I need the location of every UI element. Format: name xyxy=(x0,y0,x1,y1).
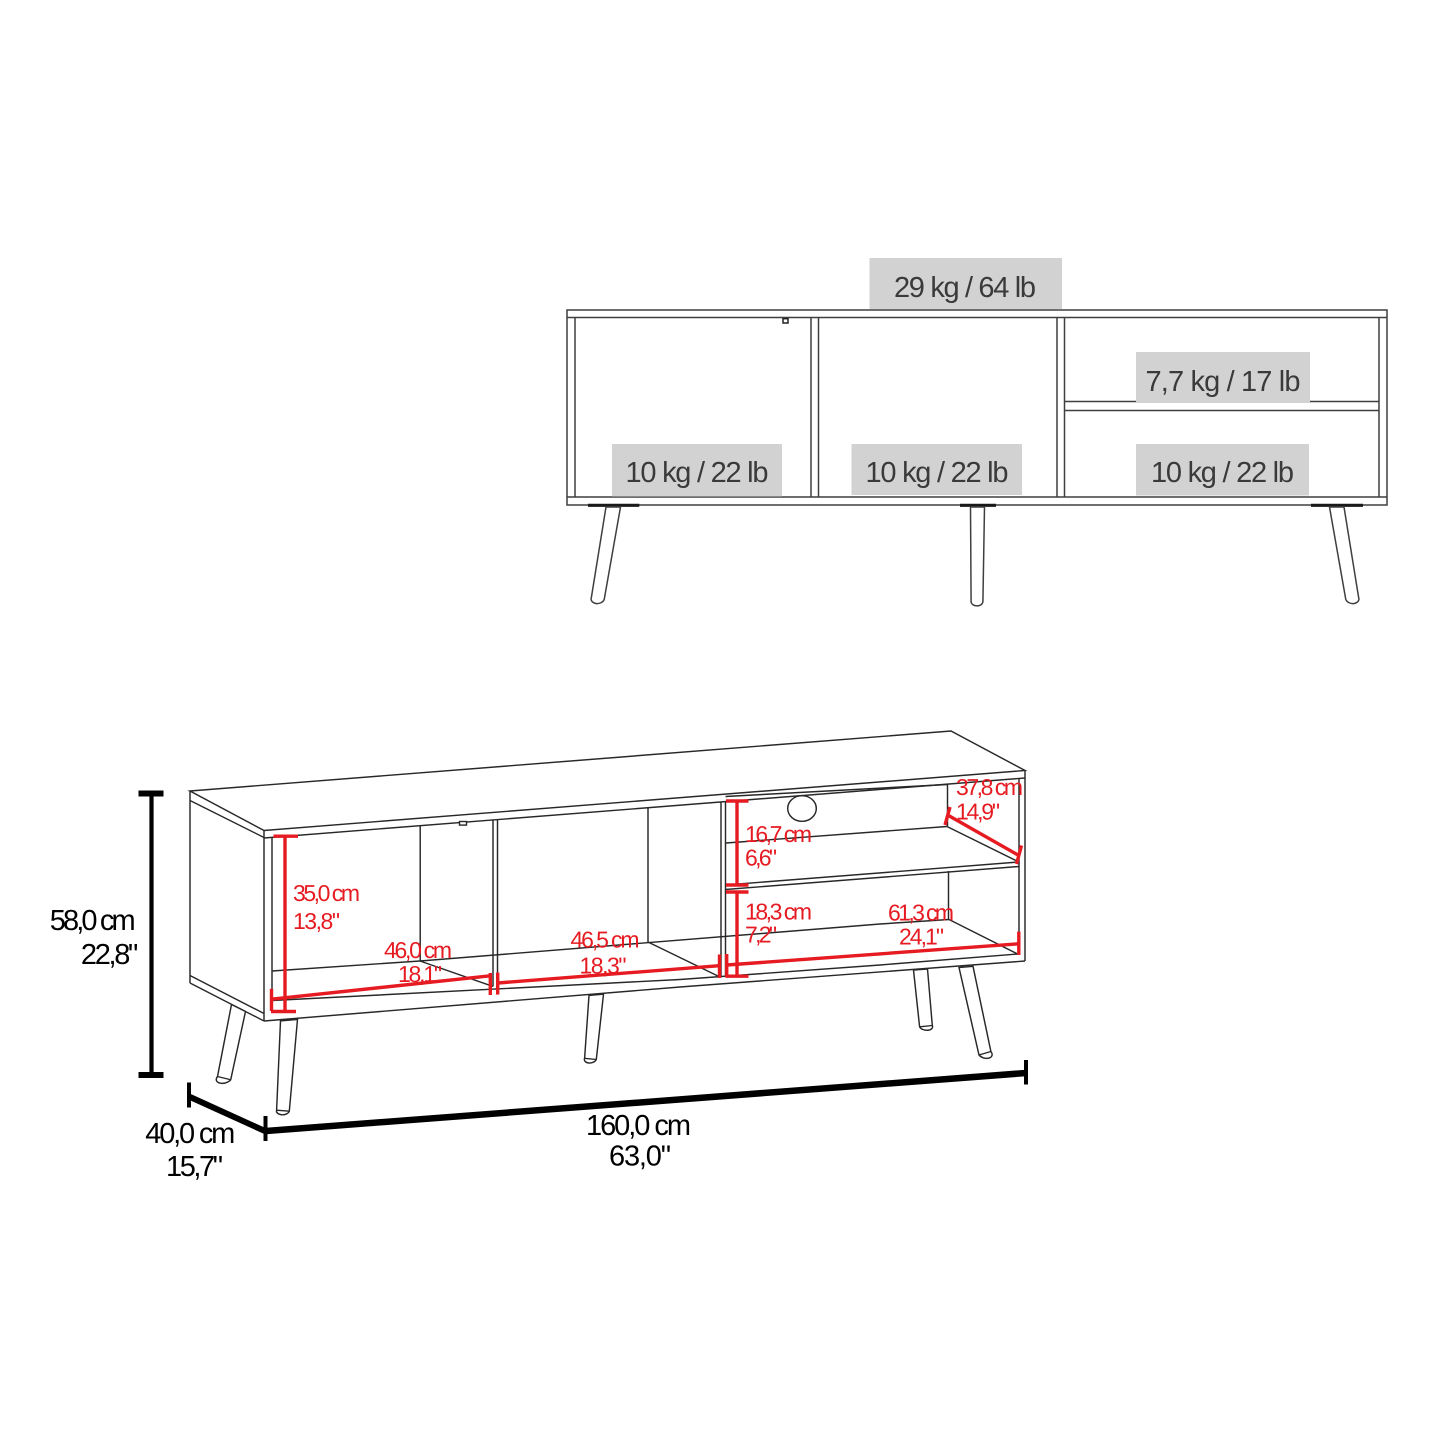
svg-text:13,8": 13,8" xyxy=(293,908,340,934)
svg-text:160,0 cm: 160,0 cm xyxy=(586,1110,691,1142)
svg-text:46,5 cm: 46,5 cm xyxy=(571,927,640,953)
svg-text:7,2": 7,2" xyxy=(745,922,777,948)
svg-text:58,0 cm: 58,0 cm xyxy=(50,905,136,937)
svg-text:46,0 cm: 46,0 cm xyxy=(384,937,452,963)
svg-text:15,7": 15,7" xyxy=(166,1151,223,1183)
svg-text:10 kg / 22 lb: 10 kg / 22 lb xyxy=(866,457,1009,489)
svg-text:24,1": 24,1" xyxy=(899,924,944,950)
svg-text:63,0": 63,0" xyxy=(609,1141,671,1173)
svg-text:35,0 cm: 35,0 cm xyxy=(293,880,360,906)
svg-text:16,7 cm: 16,7 cm xyxy=(745,821,812,847)
svg-text:10 kg / 22 lb: 10 kg / 22 lb xyxy=(626,457,769,489)
svg-text:29 kg / 64 lb: 29 kg / 64 lb xyxy=(894,272,1036,304)
svg-text:18,3": 18,3" xyxy=(580,953,627,979)
svg-text:18,1": 18,1" xyxy=(398,961,442,987)
svg-text:61,3 cm: 61,3 cm xyxy=(888,900,954,926)
svg-text:14,9": 14,9" xyxy=(956,799,1000,825)
svg-text:7,7 kg / 17 lb: 7,7 kg / 17 lb xyxy=(1146,366,1301,398)
svg-text:10 kg / 22 lb: 10 kg / 22 lb xyxy=(1151,457,1294,489)
svg-text:37,8 cm: 37,8 cm xyxy=(956,774,1023,800)
svg-text:22,8": 22,8" xyxy=(81,939,138,971)
svg-text:6,6": 6,6" xyxy=(745,845,777,871)
svg-text:40,0 cm: 40,0 cm xyxy=(145,1118,235,1150)
